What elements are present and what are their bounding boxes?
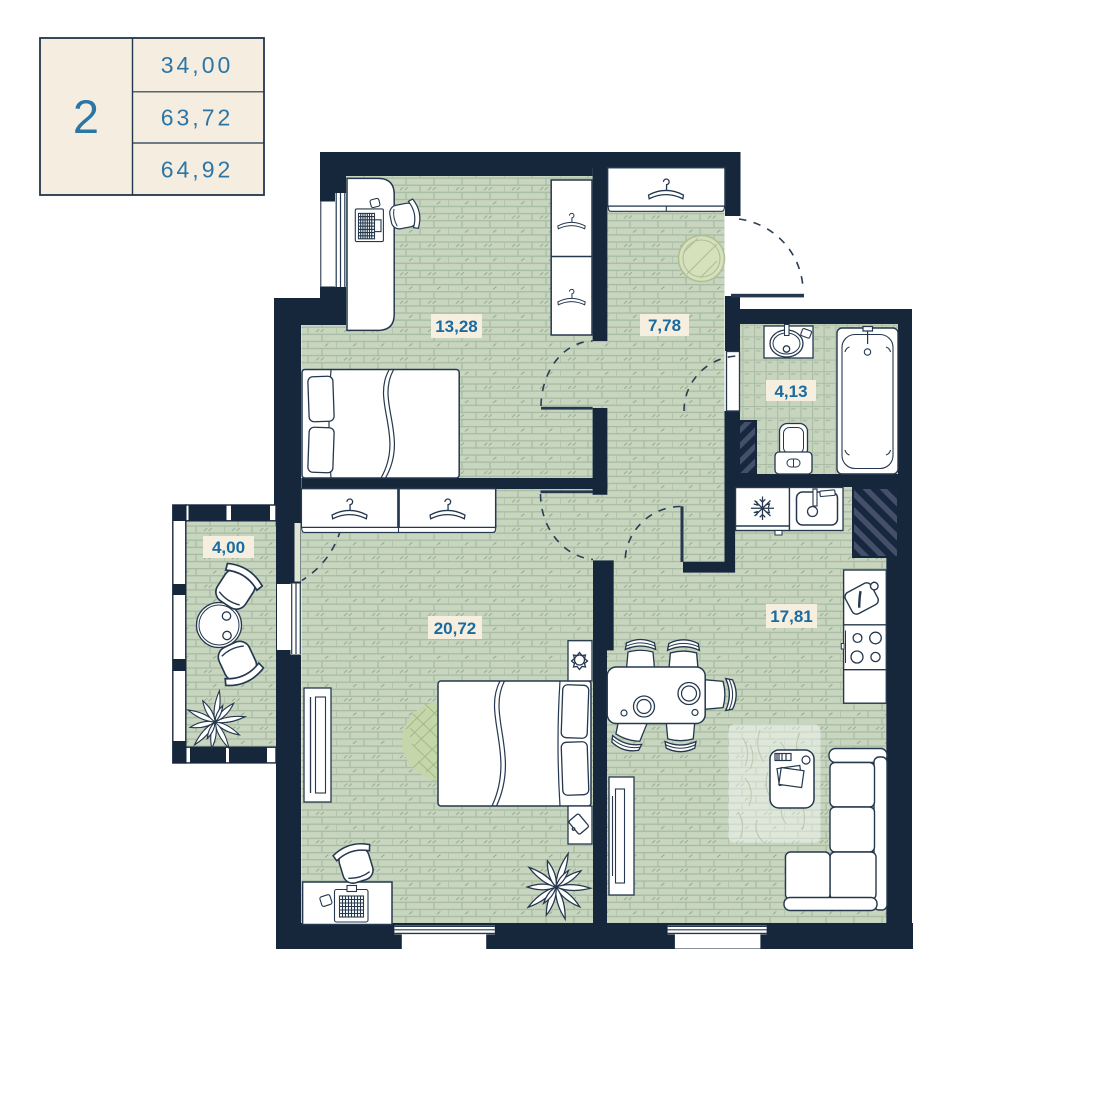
- svg-text:63,72: 63,72: [161, 105, 234, 131]
- svg-text:64,92: 64,92: [161, 157, 234, 183]
- svg-text:20,72: 20,72: [434, 619, 477, 638]
- svg-text:13,28: 13,28: [435, 317, 478, 336]
- svg-text:2: 2: [73, 90, 99, 143]
- svg-text:34,00: 34,00: [161, 52, 234, 78]
- svg-text:7,78: 7,78: [648, 316, 681, 335]
- svg-text:17,81: 17,81: [770, 607, 813, 626]
- svg-text:4,13: 4,13: [774, 382, 807, 401]
- svg-text:4,00: 4,00: [212, 538, 245, 557]
